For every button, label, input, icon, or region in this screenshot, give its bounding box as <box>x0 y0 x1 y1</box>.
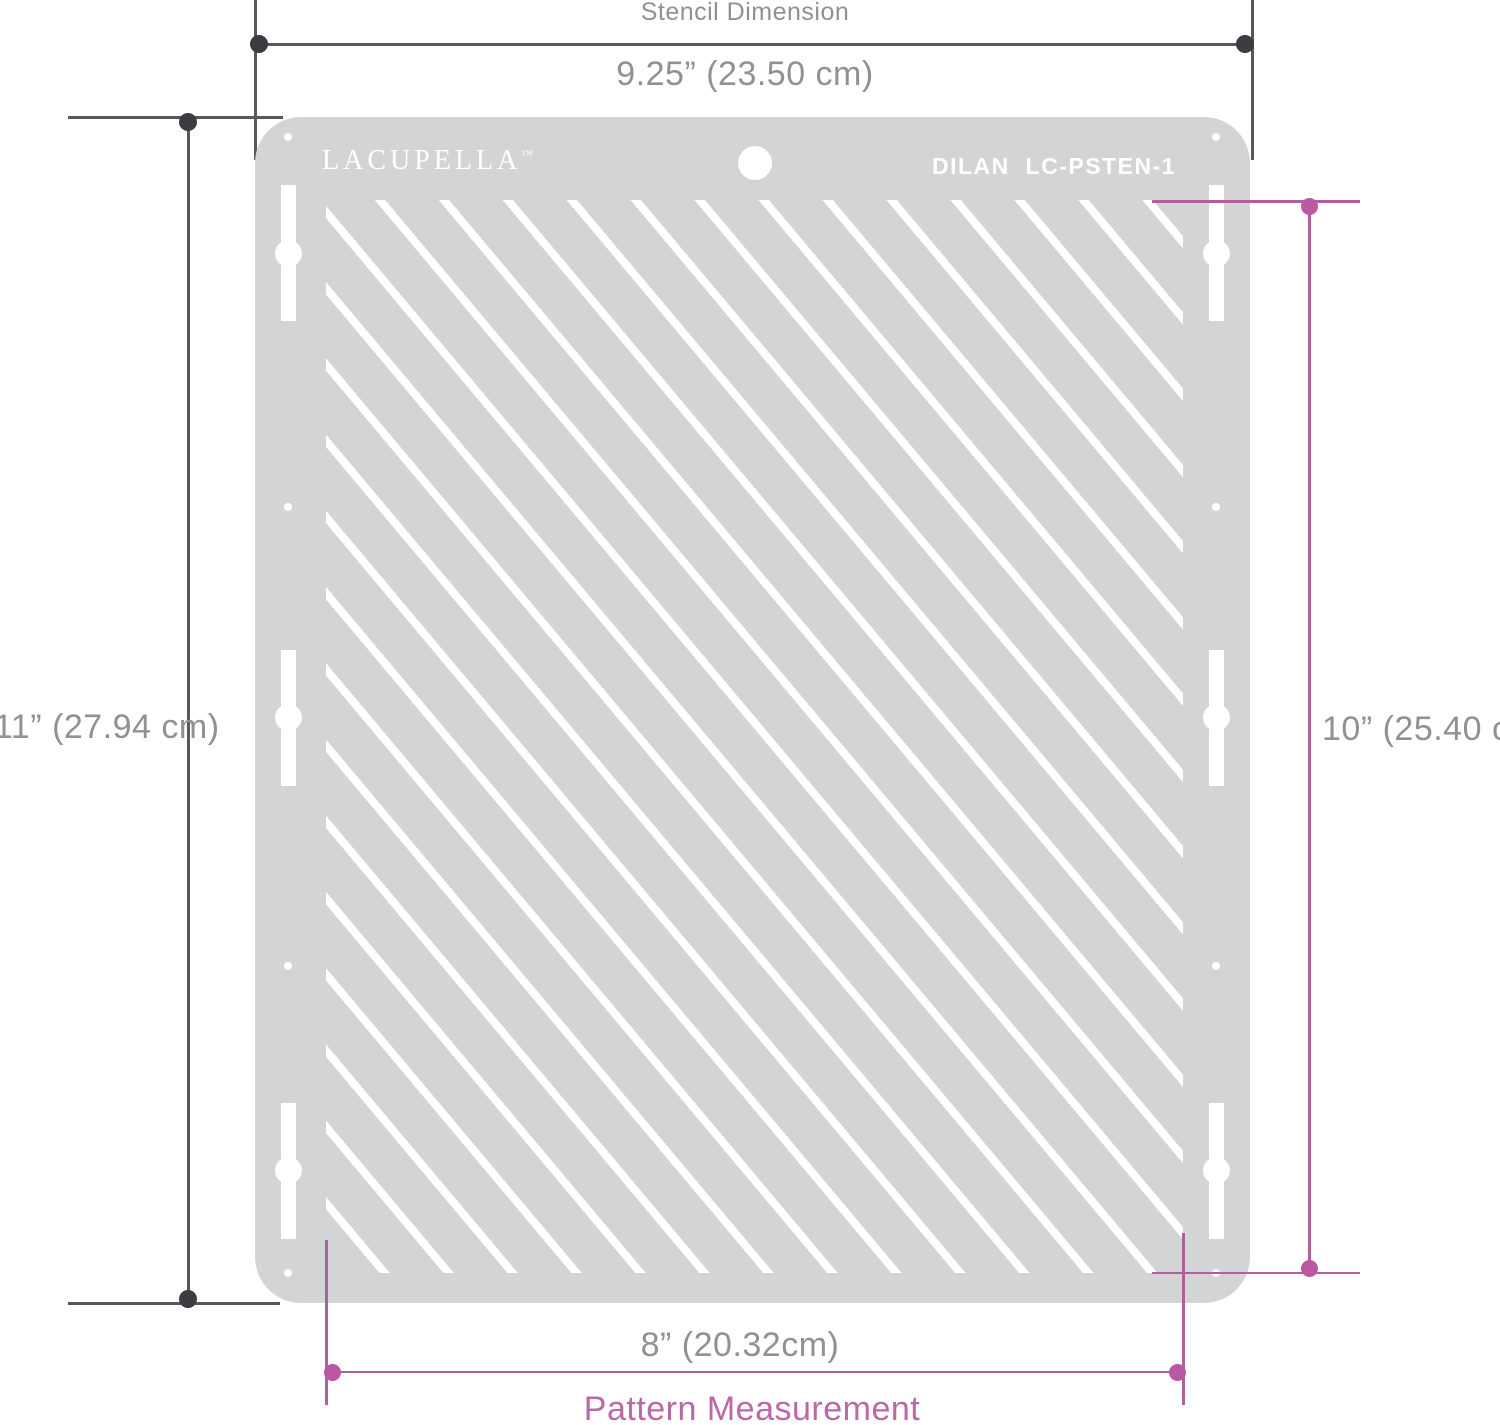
pinhole <box>1212 503 1220 511</box>
stencil-height-value: 11” (27.94 cm) <box>0 708 220 746</box>
trademark-symbol: ™ <box>521 148 533 162</box>
right-dimension-line <box>1308 206 1311 1268</box>
pinhole <box>284 133 292 141</box>
diagonal-stripe-pattern <box>326 200 1183 1273</box>
registration-hole-left-bottom <box>275 1157 302 1184</box>
right-top-extension-line <box>1152 200 1360 203</box>
stencil-sheet: LACUPELLA™ DILAN LC-PSTEN-1 <box>255 117 1250 1303</box>
stencil-width-value: 9.25” (23.50 cm) <box>445 55 1045 93</box>
bottom-dimension-line <box>332 1371 1177 1374</box>
registration-hole-right-top <box>1203 240 1230 267</box>
model-number: DILAN LC-PSTEN-1 <box>932 153 1176 180</box>
pinhole <box>284 1269 292 1277</box>
brand-logo: LACUPELLA™ <box>322 145 533 177</box>
pinhole <box>1212 962 1220 970</box>
registration-hole-left-top <box>275 240 302 267</box>
hanging-hole <box>738 146 772 180</box>
left-dimension-bottom-endpoint <box>179 1290 197 1308</box>
pinhole <box>284 962 292 970</box>
pattern-width-value: 8” (20.32cm) <box>440 1326 1040 1364</box>
registration-hole-right-bottom <box>1203 1157 1230 1184</box>
right-dimension-bottom-endpoint <box>1301 1260 1318 1277</box>
left-dimension-top-endpoint <box>179 113 197 131</box>
pinhole <box>284 503 292 511</box>
top-dimension-left-endpoint <box>250 35 268 53</box>
stencil-dimension-diagram: Stencil Dimension 9.25” (23.50 cm) 11” (… <box>0 0 1500 1425</box>
registration-hole-right-middle <box>1203 704 1230 731</box>
pattern-height-value: 10” (25.40 cm) <box>1322 710 1500 748</box>
left-bottom-extension-line <box>68 1302 280 1305</box>
pattern-measurement-title: Pattern Measurement <box>452 1390 1052 1425</box>
top-right-extension-line <box>1251 0 1254 160</box>
bottom-left-extension-line <box>325 1240 328 1405</box>
bottom-dimension-left-endpoint <box>324 1364 341 1381</box>
pinhole <box>1212 133 1220 141</box>
top-dimension-right-endpoint <box>1236 35 1254 53</box>
right-dimension-top-endpoint <box>1301 198 1318 215</box>
bottom-dimension-right-endpoint <box>1169 1364 1186 1381</box>
stencil-dimension-title: Stencil Dimension <box>445 0 1045 27</box>
top-dimension-line <box>259 43 1245 46</box>
brand-name: LACUPELLA <box>322 145 521 176</box>
top-left-extension-line <box>254 0 257 160</box>
left-top-extension-line <box>68 116 283 119</box>
registration-hole-left-middle <box>275 704 302 731</box>
